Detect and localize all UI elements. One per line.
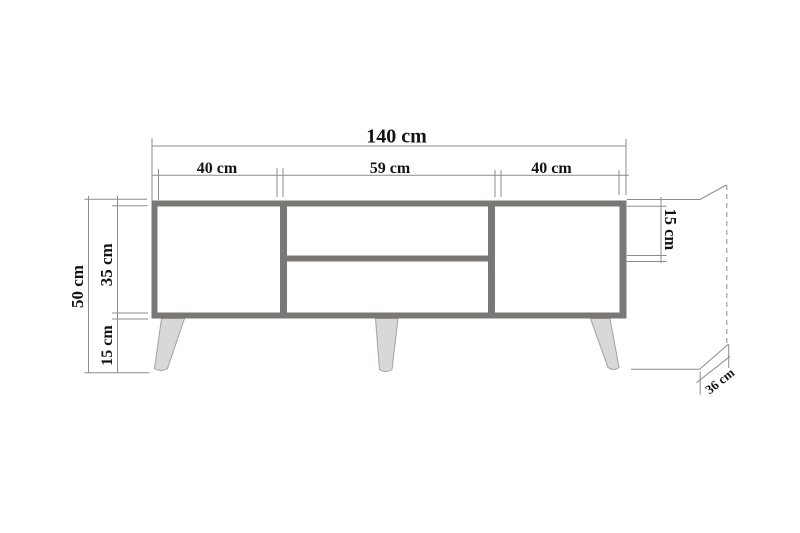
svg-text:59 cm: 59 cm — [370, 160, 411, 177]
svg-text:50 cm: 50 cm — [68, 265, 87, 308]
svg-text:40 cm: 40 cm — [197, 160, 238, 177]
svg-text:15 cm: 15 cm — [661, 208, 680, 250]
svg-text:140 cm: 140 cm — [366, 126, 427, 148]
svg-text:15 cm: 15 cm — [99, 325, 116, 366]
svg-text:40 cm: 40 cm — [531, 160, 572, 177]
svg-text:35 cm: 35 cm — [97, 243, 116, 286]
